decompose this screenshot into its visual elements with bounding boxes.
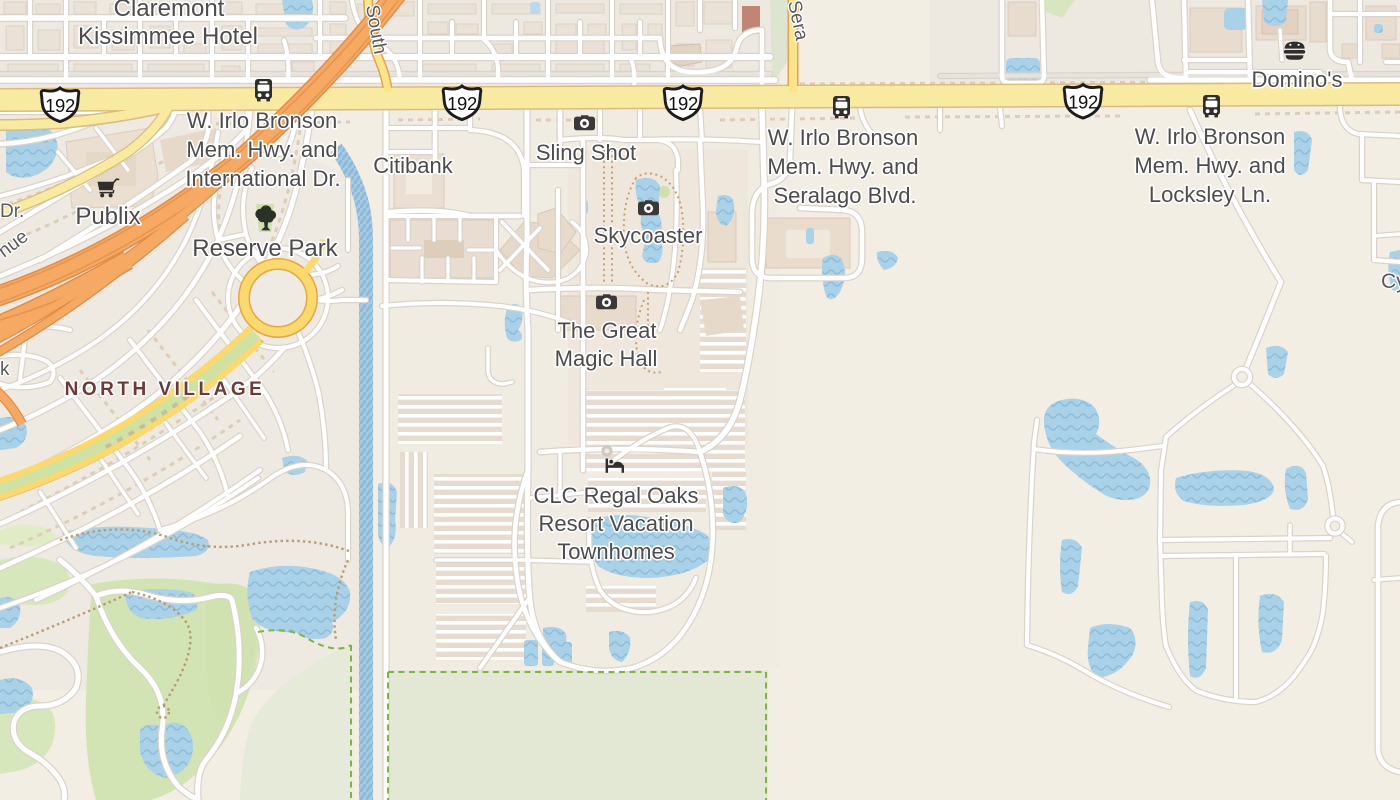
svg-text:Cy: Cy (1381, 270, 1400, 293)
svg-text:Mem. Hwy. and: Mem. Hwy. and (186, 137, 337, 162)
svg-text:Resort Vacation: Resort Vacation (539, 511, 694, 536)
svg-text:Publix: Publix (75, 203, 140, 230)
svg-text:Magic Hall: Magic Hall (555, 346, 658, 371)
svg-text:The Great: The Great (557, 318, 656, 343)
svg-text:k: k (0, 359, 10, 380)
svg-text:Locksley Ln.: Locksley Ln. (1149, 182, 1271, 207)
svg-text:Kissimmee Hotel: Kissimmee Hotel (78, 23, 258, 50)
svg-text:Sling Shot: Sling Shot (536, 140, 636, 165)
svg-text:W. Irlo Bronson: W. Irlo Bronson (768, 125, 918, 150)
svg-text:W. Irlo Bronson: W. Irlo Bronson (1135, 124, 1285, 149)
svg-text:Claremont: Claremont (114, 0, 225, 22)
svg-text:W. Irlo Bronson: W. Irlo Bronson (187, 108, 337, 133)
svg-text:Townhomes: Townhomes (557, 539, 674, 564)
svg-text:NORTH VILLAGE: NORTH VILLAGE (65, 379, 266, 400)
svg-text:Mem. Hwy. and: Mem. Hwy. and (767, 154, 918, 179)
svg-text:Citibank: Citibank (373, 153, 453, 178)
svg-text:Mem. Hwy. and: Mem. Hwy. and (1134, 153, 1285, 178)
svg-text:Domino's: Domino's (1251, 67, 1342, 92)
svg-text:Dr.: Dr. (0, 201, 24, 222)
svg-text:Skycoaster: Skycoaster (594, 223, 703, 248)
svg-text:International Dr.: International Dr. (185, 166, 340, 191)
svg-text:Reserve Park: Reserve Park (192, 235, 338, 262)
svg-text:Seralago Blvd.: Seralago Blvd. (773, 183, 916, 208)
svg-text:CLC Regal Oaks: CLC Regal Oaks (533, 483, 698, 508)
